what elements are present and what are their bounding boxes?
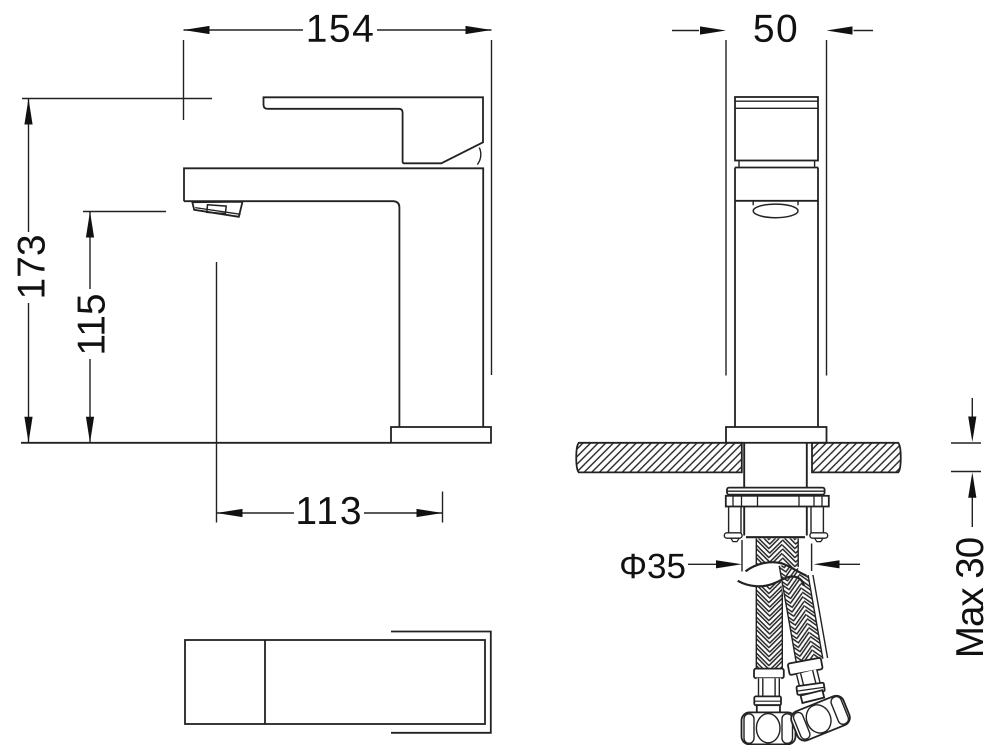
svg-text:115: 115 <box>70 293 113 355</box>
svg-text:154: 154 <box>306 8 376 51</box>
svg-text:50: 50 <box>753 8 799 51</box>
svg-text:173: 173 <box>11 234 54 299</box>
svg-text:Φ35: Φ35 <box>619 547 686 586</box>
svg-text:Max 30: Max 30 <box>949 538 992 658</box>
svg-text:113: 113 <box>295 490 363 533</box>
